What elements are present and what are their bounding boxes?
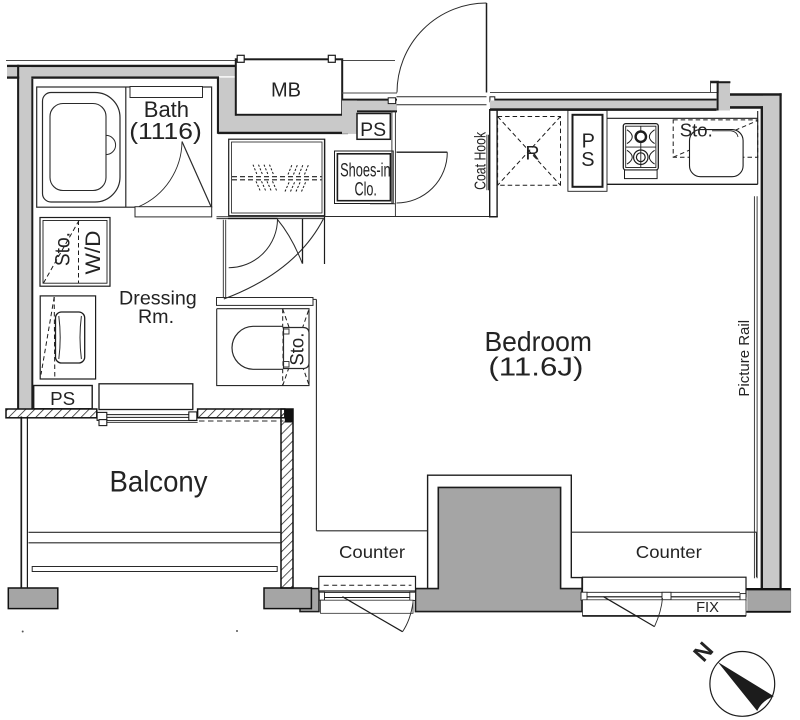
svg-text:Counter: Counter [339, 542, 405, 562]
svg-text:Sto.: Sto. [52, 232, 75, 266]
svg-text:Rm.: Rm. [138, 306, 174, 328]
svg-text:PS: PS [360, 119, 386, 141]
svg-text:Clo.: Clo. [354, 179, 377, 201]
svg-text:Sto.: Sto. [288, 333, 309, 366]
svg-text:Coat Hook: Coat Hook [473, 131, 490, 190]
svg-text:S: S [581, 149, 594, 171]
svg-text:Sto.: Sto. [680, 120, 713, 141]
svg-text:Balcony: Balcony [110, 466, 208, 499]
svg-text:Picture Rail: Picture Rail [736, 320, 753, 397]
svg-text:PS: PS [50, 388, 75, 409]
svg-text:MB: MB [271, 80, 301, 102]
svg-text:(11.6J): (11.6J) [488, 351, 583, 381]
svg-text:W/D: W/D [81, 231, 105, 275]
svg-text:R: R [525, 142, 539, 164]
svg-text:FIX: FIX [696, 600, 719, 616]
svg-text:Counter: Counter [636, 542, 702, 562]
svg-text:(1116): (1116) [129, 118, 202, 144]
